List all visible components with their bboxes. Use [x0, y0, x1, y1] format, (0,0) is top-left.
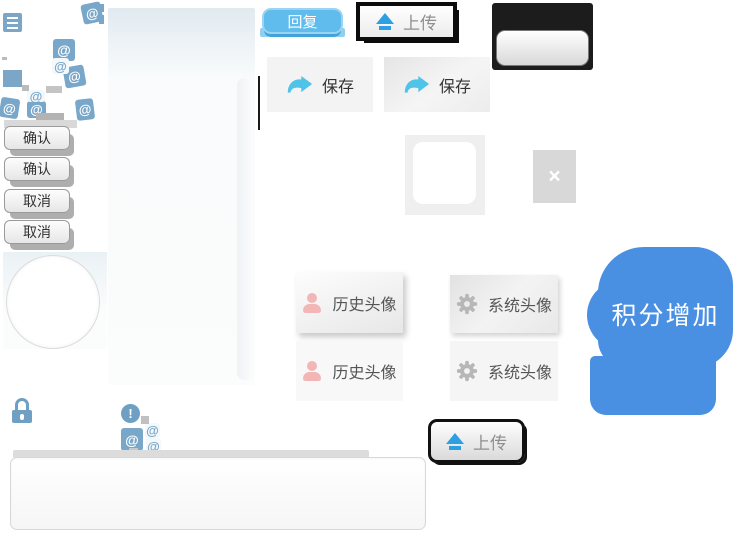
at-mention-icon[interactable]: @	[75, 98, 95, 121]
comment-box[interactable]	[10, 457, 426, 530]
save-button[interactable]: 保存	[384, 57, 490, 112]
sprite-sheet-canvas: @ @ @ @ @ @ @ @ @ @ @ 确认 确认 取消 取消 回复 上传	[0, 0, 750, 535]
alert-icon: !	[121, 404, 140, 423]
scrollbar[interactable]	[237, 78, 252, 380]
points-bubble-tail	[590, 356, 716, 415]
confirm-button[interactable]: 确认	[4, 157, 70, 181]
history-avatar-label: 历史头像	[332, 359, 396, 383]
at-mention-ghost-icon: @	[145, 423, 160, 438]
shadow-block	[141, 416, 149, 424]
confirm-button[interactable]: 确认	[4, 126, 70, 150]
gear-icon	[456, 293, 478, 315]
dropdown-panel	[492, 3, 593, 70]
share-arrow-icon	[403, 75, 430, 94]
at-mention-ghost-icon: @	[52, 58, 69, 74]
save-label: 保存	[439, 73, 471, 97]
at-mention-ghost-icon: @	[27, 90, 45, 102]
divider-line	[258, 76, 260, 130]
history-avatar-label: 历史头像	[332, 291, 396, 315]
blue-dash	[99, 15, 104, 24]
gear-icon	[456, 360, 478, 382]
reply-button[interactable]: 回复	[262, 8, 343, 34]
list-panel	[108, 8, 255, 385]
save-button[interactable]: 保存	[267, 57, 373, 112]
hamburger-lines-icon	[7, 17, 18, 29]
history-avatar-button[interactable]: 历史头像	[296, 272, 403, 333]
lock-body	[12, 410, 32, 423]
points-increase-label: 积分增加	[598, 296, 733, 332]
save-label: 保存	[322, 73, 354, 97]
person-icon	[302, 293, 322, 313]
cancel-button[interactable]: 取消	[4, 220, 70, 244]
system-avatar-label: 系统头像	[488, 359, 552, 383]
lock-icon	[12, 398, 32, 423]
upload-label: 上传	[473, 429, 507, 454]
thumbnail-preview	[413, 142, 476, 204]
share-arrow-icon	[286, 75, 313, 94]
thumbnail-frame	[405, 135, 485, 215]
upload-button[interactable]: 上传	[356, 2, 457, 41]
avatar-circle-placeholder[interactable]	[6, 255, 100, 349]
blue-dash	[99, 4, 104, 12]
menu-icon[interactable]	[3, 13, 22, 32]
upload-button[interactable]: 上传	[428, 419, 525, 463]
upload-label: 上传	[403, 9, 437, 34]
system-avatar-button[interactable]: 系统头像	[450, 275, 558, 333]
history-avatar-button[interactable]: 历史头像	[296, 341, 403, 401]
close-button[interactable]: ×	[533, 150, 576, 203]
cancel-button[interactable]: 取消	[4, 189, 70, 213]
upload-arrow-icon	[446, 433, 464, 450]
shadow-block	[22, 85, 29, 91]
blue-square-swatch	[3, 70, 22, 87]
shadow-block	[2, 57, 7, 60]
system-avatar-label: 系统头像	[488, 292, 552, 316]
at-mention-icon[interactable]: @	[0, 97, 20, 120]
shadow-block	[46, 86, 62, 93]
upload-arrow-icon	[376, 13, 394, 30]
system-avatar-button[interactable]: 系统头像	[450, 341, 558, 401]
dropdown-button[interactable]	[496, 30, 589, 66]
person-icon	[302, 361, 322, 381]
